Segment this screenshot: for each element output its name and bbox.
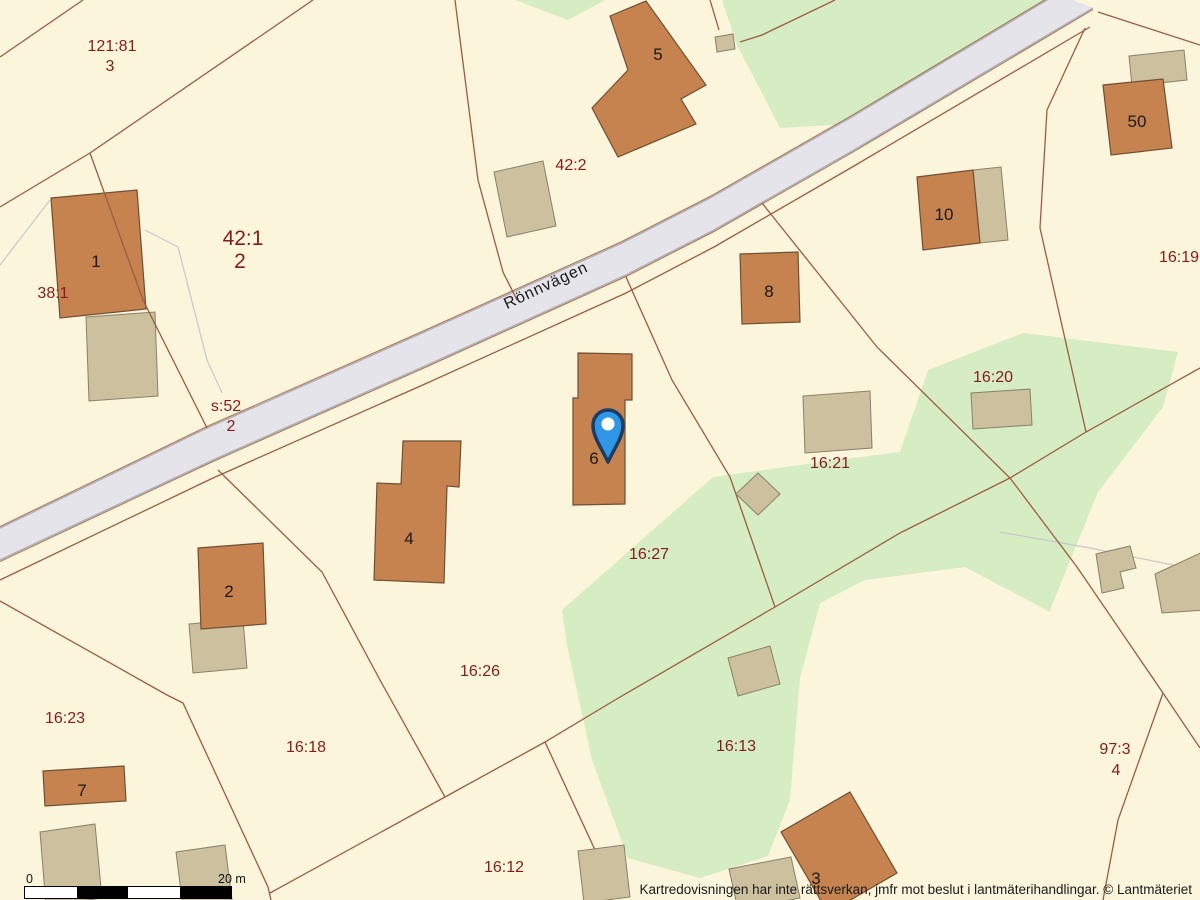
scale-distance-label: 20 m: [218, 872, 246, 886]
parcel-label-7: 42:2: [555, 157, 586, 174]
parcel-label-5: s:52: [211, 398, 241, 415]
parcel-label-0: 121:81: [88, 38, 137, 55]
outbuilding-7: [803, 391, 872, 453]
parcel-label-2: 42:1: [223, 227, 264, 250]
building-label-5: 5: [653, 45, 662, 64]
outbuilding-6: [971, 389, 1032, 429]
building-label-1: 1: [91, 252, 100, 271]
scale-bar-segment-1: [25, 887, 77, 898]
parcel-label-15: 16:13: [716, 738, 756, 755]
scale-bar-labels: 0 20 m: [24, 872, 230, 885]
parcel-label-10: 16:21: [810, 455, 850, 472]
building-label-8: 8: [764, 282, 773, 301]
map-canvas[interactable]: 158105064273121:81342:1238:1s:52242:216:…: [0, 0, 1200, 900]
parcel-label-13: 16:23: [45, 710, 85, 727]
parcel-label-3: 2: [234, 250, 246, 273]
parcel-label-1: 3: [106, 58, 115, 75]
outbuilding-1: [86, 312, 158, 401]
building-label-7: 7: [77, 781, 86, 800]
building-label-6: 6: [589, 449, 598, 468]
parcel-label-12: 16:26: [460, 663, 500, 680]
outbuilding-3: [715, 34, 735, 52]
building-label-50: 50: [1128, 112, 1147, 131]
scale-bar: 0 20 m: [24, 872, 264, 898]
parcel-label-17: 97:3: [1099, 741, 1130, 758]
parcel-label-14: 16:18: [286, 739, 326, 756]
parcel-label-6: 2: [227, 418, 236, 435]
scale-zero-label: 0: [26, 872, 33, 886]
scale-bar-segment-2: [77, 887, 129, 898]
parcel-label-16: 16:12: [484, 859, 524, 876]
parcel-label-18: 4: [1112, 762, 1121, 779]
cadastral-map: 158105064273121:81342:1238:1s:52242:216:…: [0, 0, 1200, 900]
building-label-10: 10: [935, 205, 954, 224]
map-attribution: Kartredovisningen har inte rättsverkan, …: [640, 882, 1192, 897]
parcel-label-4: 38:1: [37, 285, 68, 302]
scale-bar-segment-3: [128, 887, 180, 898]
parcel-label-8: 16:19: [1159, 249, 1199, 266]
scale-bar-rule: [24, 886, 232, 899]
location-pin-hole: [602, 418, 615, 431]
building-label-2: 2: [224, 582, 233, 601]
building-label-4: 4: [404, 529, 413, 548]
scale-bar-segment-4: [180, 887, 232, 898]
parcel-label-11: 16:27: [629, 546, 669, 563]
parcel-label-9: 16:20: [973, 369, 1013, 386]
outbuilding-13: [578, 845, 630, 900]
